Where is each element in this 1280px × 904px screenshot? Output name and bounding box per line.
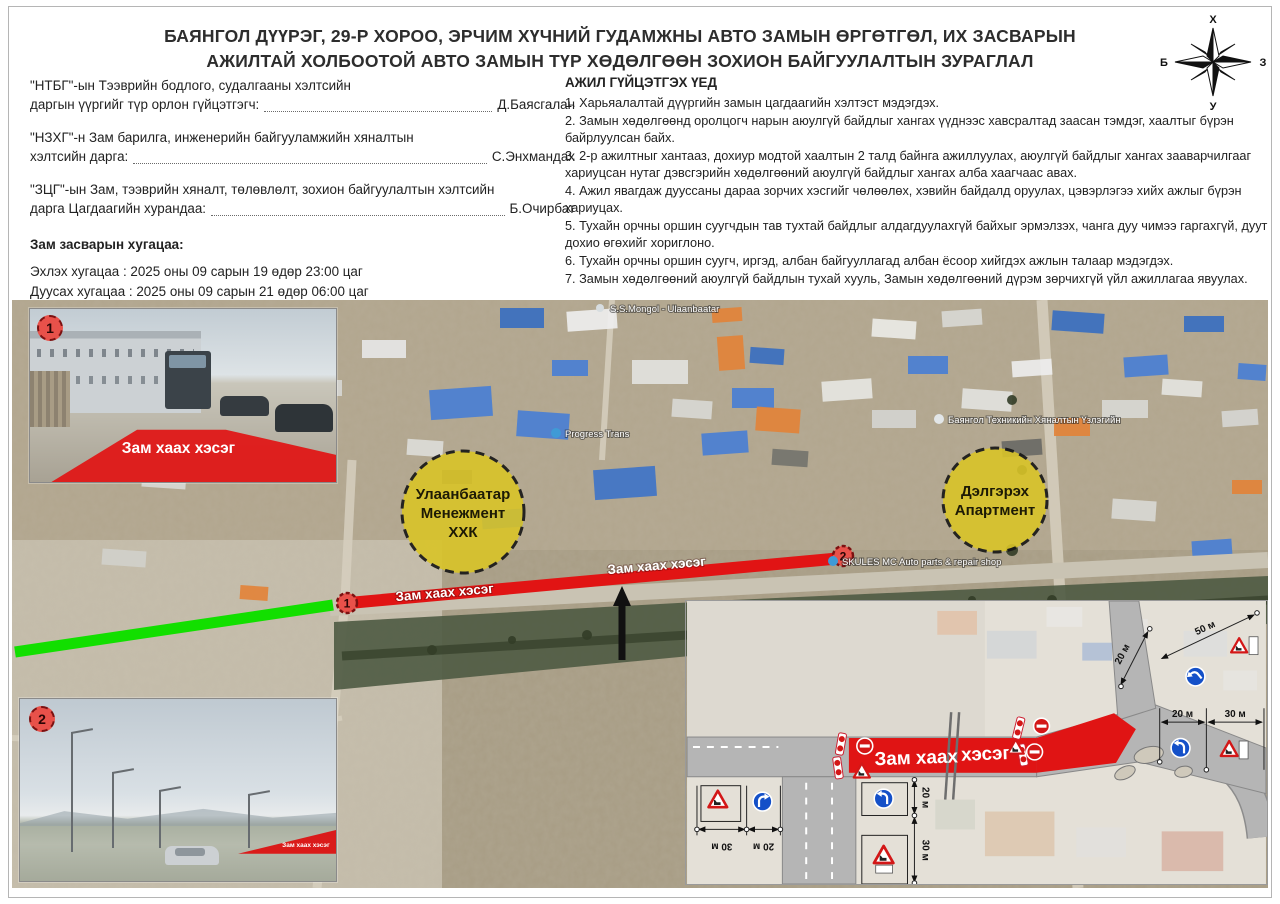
dim-label: 20 м: [1172, 709, 1193, 720]
signatory-3-role: "ЗЦГ"-ын Зам, тээврийн хяналт, төлөвлөлт…: [30, 180, 575, 199]
street-light-pole: [248, 794, 250, 849]
poi-label: S.S.Mongol - Ulaanbaatar: [610, 304, 719, 315]
map-pin-icon: [934, 414, 944, 424]
map-pin-icon: [828, 556, 838, 566]
street-photo-1: Зам хаах хэсэг 1: [29, 308, 337, 483]
map-pin-icon: [551, 428, 561, 438]
instruction-item: 5. Тухайн орчны оршин суугчдын тав тухта…: [565, 218, 1268, 252]
signatory-2: "НЗХГ"-н Зам барилга, инженерийн байгуул…: [30, 128, 575, 167]
street-photo-2: Зам хаах хэсэг 2: [19, 698, 337, 882]
dim-label: 20 м: [919, 787, 930, 808]
schedule-heading: Зам засварын хугацаа:: [30, 235, 575, 254]
poi-label: Баянгол Техникийн Хяналтын Үзлэгийн: [948, 415, 1121, 426]
street-light-pole: [112, 772, 114, 848]
svg-text:Апартмент: Апартмент: [955, 502, 1035, 519]
traffic-sign-diagram: Зам хаах хэсэг: [685, 600, 1268, 885]
signatory-3-role-2: дарга Цагдаагийн хурандаа:: [30, 199, 206, 218]
signatory-2-role: "НЗХГ"-н Зам барилга, инженерийн байгуул…: [30, 128, 575, 147]
photo-2-marker: 2: [29, 706, 55, 732]
svg-text:Дэлгэрэх: Дэлгэрэх: [961, 483, 1030, 500]
zone-ulaanbaatar-management: Улаанбаатар Менежмент ХХК: [402, 451, 524, 573]
work-instructions-section: АЖИЛ ГҮЙЦЭТГЭХ ҮЕД 1. Харьяалалтай дүүрг…: [565, 74, 1268, 315]
svg-text:Зам хаах: Зам хаах: [874, 745, 959, 769]
poi-label: Progress Trans: [565, 429, 630, 440]
signatory-2-role-2: хэлтсийн дарга:: [30, 147, 128, 166]
photo-1-marker: 1: [37, 315, 63, 341]
dim-label: 30 м: [919, 840, 930, 861]
traffic-plan-document: БАЯНГОЛ ДҮҮРЭГ, 29-Р ХОРОО, ЭРЧИМ ХҮЧНИЙ…: [0, 0, 1280, 904]
instruction-item: 3. 2-р ажилтныг хантааз, дохиур модтой х…: [565, 148, 1268, 182]
instruction-item: 7. Замын хөдөлгөөний аюулгүй байдлын тух…: [565, 271, 1268, 288]
signature-line: [133, 163, 487, 164]
svg-text:хэсэг: хэсэг: [961, 742, 1011, 765]
street-light-pole: [71, 732, 73, 852]
schedule-start: Эхлэх хугацаа : 2025 оны 09 сарын 19 өдө…: [30, 262, 575, 281]
svg-text:Улаанбаатар: Улаанбаатар: [416, 486, 510, 503]
fence: [30, 371, 70, 426]
signature-line: [264, 111, 492, 112]
closure-overlay-label: Зам хаах хэсэг: [282, 842, 330, 849]
mountains: [20, 805, 336, 827]
street-light-pole: [159, 790, 161, 848]
car: [165, 846, 219, 864]
page-title: БАЯНГОЛ ДҮҮРЭГ, 29-Р ХОРОО, ЭРЧИМ ХҮЧНИЙ…: [90, 24, 1150, 75]
schedule-end: Дуусах хугацаа : 2025 оны 09 сарын 21 өд…: [30, 282, 575, 301]
instructions-heading: АЖИЛ ГҮЙЦЭТГЭХ ҮЕД: [565, 74, 1268, 92]
signatory-1-role: "НТБГ"-ын Тээврийн бодлого, судалгааны х…: [30, 76, 575, 95]
map-pin-icon: [596, 304, 604, 312]
signatory-1-role-2: даргын үүргийг түр орлон гүйцэтгэгч:: [30, 95, 259, 114]
signatory-3: "ЗЦГ"-ын Зам, тээврийн хяналт, төлөвлөлт…: [30, 180, 575, 219]
compass-east-label: З: [1260, 57, 1267, 69]
signatory-1-name: Д.Баясгалан: [497, 95, 575, 114]
zone-delgerekh-apartment: Дэлгэрэх Апартмент: [943, 448, 1047, 552]
dim-label: 30 м: [711, 840, 732, 851]
car: [220, 396, 269, 417]
title-line-2: АЖИЛТАЙ ХОЛБООТОЙ АВТО ЗАМЫН ТҮР ХӨДӨЛГӨ…: [90, 49, 1150, 74]
dim-label: 20 м: [753, 840, 774, 851]
signatories-section: "НТБГ"-ын Тээврийн бодлого, судалгааны х…: [30, 76, 575, 301]
signatory-2-name: С.Энхмандах: [492, 147, 575, 166]
poi-label: SKULES MC Auto parts & repair shop: [842, 557, 1001, 568]
svg-text:1: 1: [344, 597, 351, 611]
instruction-item: 2. Замын хөдөлгөөнд оролцогч нарын аюулг…: [565, 113, 1268, 147]
dim-label: 30 м: [1225, 709, 1246, 720]
signatory-1: "НТБГ"-ын Тээврийн бодлого, судалгааны х…: [30, 76, 575, 115]
svg-text:Менежмент: Менежмент: [421, 505, 506, 522]
satellite-map[interactable]: Зам хаах хэсэг Зам хаах хэсэг 1 2 Улаанб…: [12, 300, 1268, 888]
instruction-item: 6. Тухайн орчны оршин суугч, иргэд, алба…: [565, 253, 1268, 270]
svg-text:ХХК: ХХК: [448, 524, 478, 541]
compass-north-label: Х: [1209, 14, 1217, 26]
instruction-item: 1. Харьяалалтай дүүргийн замын цагдаагий…: [565, 95, 1268, 112]
signature-line: [211, 215, 504, 216]
car: [275, 404, 333, 432]
truck: [165, 351, 211, 410]
closure-marker-1: 1: [337, 593, 357, 613]
instruction-item: 4. Ажил явагдаж дууссаны дараа зорчих хэ…: [565, 183, 1268, 217]
title-line-1: БАЯНГОЛ ДҮҮРЭГ, 29-Р ХОРОО, ЭРЧИМ ХҮЧНИЙ…: [90, 24, 1150, 49]
closure-overlay-label: Зам хаах хэсэг: [122, 440, 235, 458]
compass-west-label: Б: [1160, 57, 1168, 69]
